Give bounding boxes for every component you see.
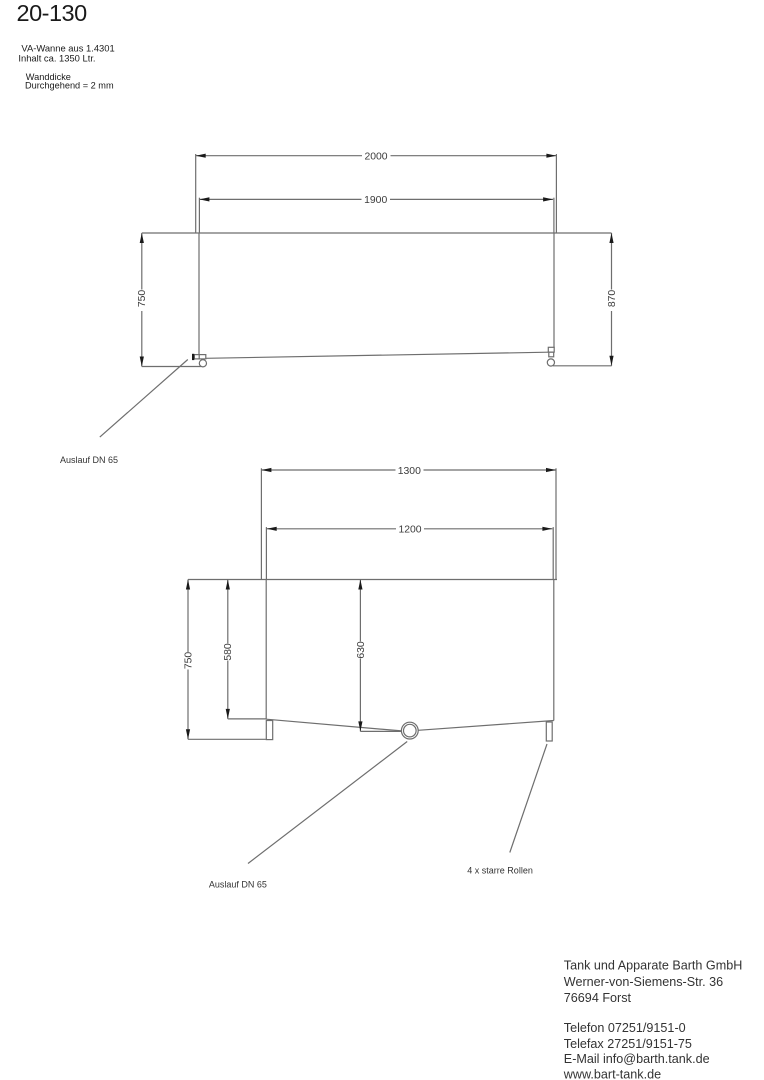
svg-text:2000: 2000 [364,152,387,163]
svg-text:Tank und Apparate Barth GmbH: Tank und Apparate Barth GmbH [564,959,743,973]
svg-text:Telefax 27251/9151-75: Telefax 27251/9151-75 [564,1037,692,1051]
svg-text:750: 750 [183,652,194,670]
svg-text:1900: 1900 [364,195,387,206]
svg-text:1200: 1200 [398,525,421,536]
svg-text:1300: 1300 [398,466,421,477]
svg-text:750: 750 [137,290,148,308]
svg-text:4 x starre Rollen: 4 x starre Rollen [467,865,533,875]
svg-text:Auslauf DN 65: Auslauf DN 65 [60,455,118,465]
svg-text:630: 630 [356,641,367,659]
svg-text:20-130: 20-130 [17,0,88,26]
svg-text:www.bart-tank.de: www.bart-tank.de [563,1067,661,1080]
svg-text:Inhalt ca. 1350 Ltr.: Inhalt ca. 1350 Ltr. [18,53,95,64]
svg-text:76694 Forst: 76694 Forst [564,991,632,1005]
svg-text:Telefon 07251/9151-0: Telefon 07251/9151-0 [564,1021,686,1035]
svg-text:580: 580 [223,643,234,661]
svg-text:E-Mail info@barth.tank.de: E-Mail info@barth.tank.de [564,1052,710,1066]
svg-text:Werner-von-Siemens-Str. 36: Werner-von-Siemens-Str. 36 [564,975,723,989]
svg-text:Durchgehend = 2 mm: Durchgehend = 2 mm [25,81,114,91]
svg-text:870: 870 [607,290,618,308]
svg-text:Auslauf DN 65: Auslauf DN 65 [209,879,267,889]
